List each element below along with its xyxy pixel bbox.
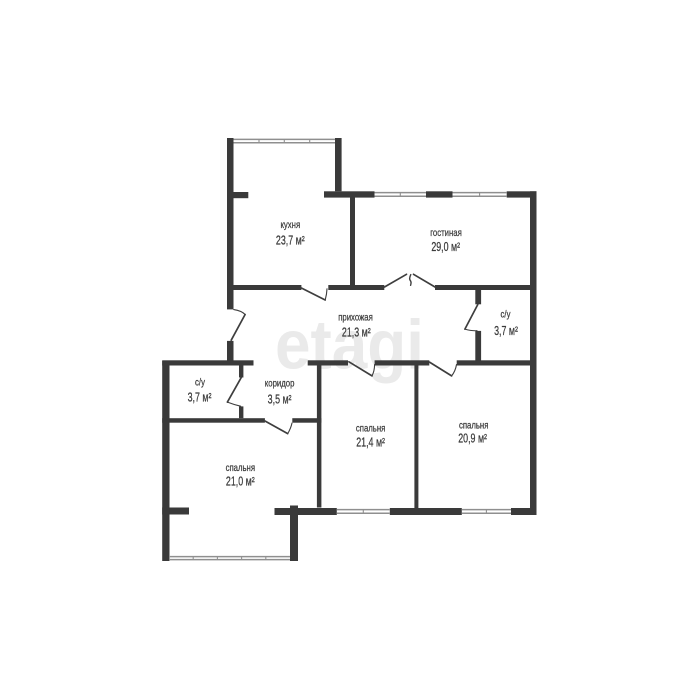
svg-text:с/у: с/у: [195, 376, 205, 387]
svg-text:прихожая: прихожая: [338, 311, 373, 322]
svg-text:21,0 м²: 21,0 м²: [226, 475, 255, 489]
svg-text:кухня: кухня: [280, 219, 300, 230]
svg-text:спальня: спальня: [356, 423, 385, 434]
svg-text:3,7 м²: 3,7 м²: [188, 391, 212, 405]
svg-text:3,7 м²: 3,7 м²: [494, 324, 518, 338]
svg-text:коридор: коридор: [265, 377, 295, 388]
svg-text:спальня: спальня: [226, 462, 255, 473]
svg-text:с/у: с/у: [501, 308, 511, 319]
svg-text:гостиная: гостиная: [430, 227, 462, 238]
svg-text:3,5 м²: 3,5 м²: [268, 393, 292, 407]
svg-text:29,0 м²: 29,0 м²: [431, 241, 460, 255]
svg-text:20,9 м²: 20,9 м²: [458, 432, 487, 446]
svg-text:21,3 м²: 21,3 м²: [342, 326, 371, 340]
svg-text:23,7 м²: 23,7 м²: [276, 234, 305, 248]
svg-text:21,4 м²: 21,4 м²: [356, 436, 385, 450]
svg-text:спальня: спальня: [459, 419, 488, 430]
